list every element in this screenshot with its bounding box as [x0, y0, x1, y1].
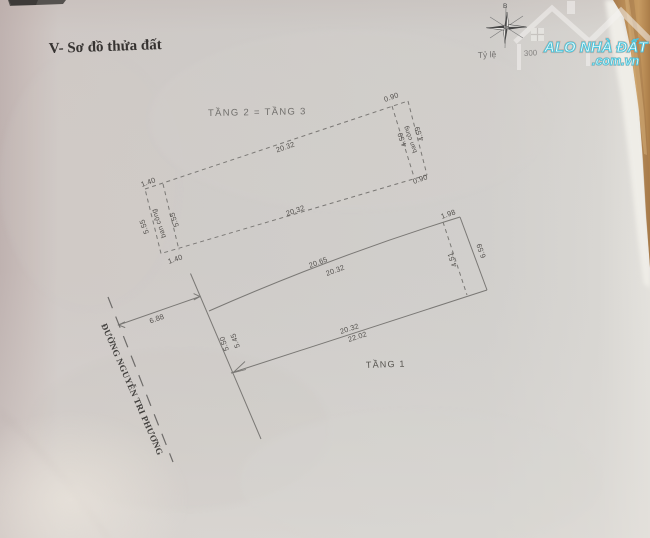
svg-text:TẦNG 2 = TẦNG 3: TẦNG 2 = TẦNG 3	[208, 106, 307, 119]
svg-text:.com.vn: .com.vn	[592, 54, 640, 68]
svg-text:300: 300	[524, 48, 538, 58]
svg-text:B: B	[503, 3, 507, 10]
svg-text:TẦNG 1: TẦNG 1	[366, 359, 406, 370]
svg-text:Tỷ lệ: Tỷ lệ	[478, 49, 497, 60]
